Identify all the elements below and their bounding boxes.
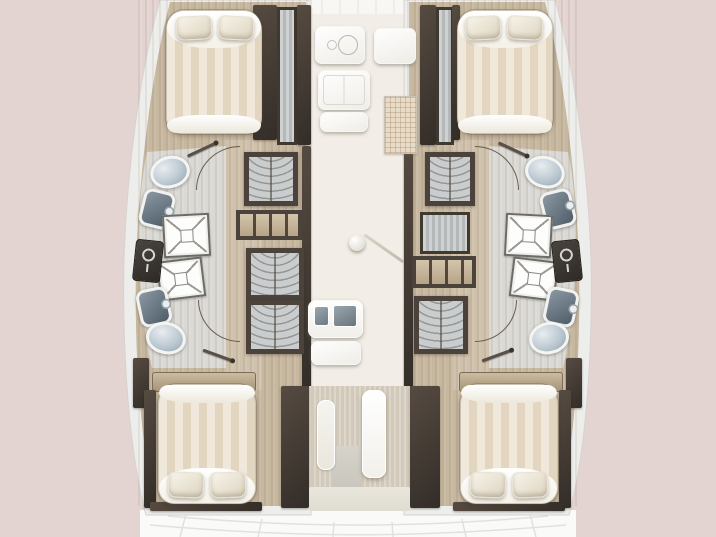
port-fwd-shower: [162, 213, 211, 258]
stbd-mid-locker: [420, 212, 470, 254]
port-fwd-pillow-a: [175, 15, 212, 41]
galley-counter-fwd: [320, 112, 368, 132]
stbd-shelf-unit: [412, 256, 476, 288]
port-fwd-pillow-b: [217, 15, 254, 41]
port-fwd-wardrobe: [244, 152, 298, 206]
port-shelf-unit: [236, 210, 302, 240]
stbd-aft-wardrobe: [414, 296, 468, 354]
stbd-tech-unit: [551, 239, 583, 284]
galley-counter-aft: [311, 341, 361, 365]
port-fwd-hanging-locker: [277, 7, 297, 145]
stbd-fwd-pillow-b: [506, 15, 543, 41]
stbd-saloon-partition: [420, 5, 436, 145]
track-line: [363, 234, 404, 264]
companionway-step-low: [317, 400, 335, 470]
stbd-aft-pillow-b: [512, 471, 549, 498]
port-saloon-partition: [297, 5, 311, 145]
port-fwd-toilet: [147, 151, 194, 192]
companionway-stbd-cabinet: [410, 386, 440, 508]
port-aft-pillow-a: [168, 471, 205, 498]
port-aft-cabin-door: [202, 349, 233, 363]
port-aft-pillow-b: [210, 471, 247, 498]
compression-post: [349, 235, 365, 251]
stbd-aft-cabin-door: [481, 349, 512, 363]
port-tech-unit: [132, 239, 164, 284]
port-aft-sidewall: [144, 390, 156, 508]
saloon-mat: [384, 96, 417, 154]
stbd-fwd-pillow-a: [464, 15, 501, 41]
catamaran-floorplan: [0, 0, 716, 537]
port-aft-wardrobe: [246, 300, 304, 354]
fixtures-layer: [0, 0, 716, 537]
companionway-step-high: [362, 390, 386, 478]
galley-sink: [308, 300, 363, 338]
galley-stove: [315, 26, 365, 64]
stbd-fwd-wardrobe: [425, 152, 475, 206]
nav-counter: [374, 28, 416, 64]
stbd-fwd-shower: [504, 213, 553, 258]
cockpit-sill: [309, 487, 410, 511]
stbd-aft-sidewall: [559, 390, 571, 508]
companionway-port-cabinet: [281, 386, 309, 508]
stbd-aft-pillow-a: [470, 471, 507, 498]
port-mid-wardrobe: [246, 248, 304, 300]
galley-fridge: [318, 70, 370, 110]
